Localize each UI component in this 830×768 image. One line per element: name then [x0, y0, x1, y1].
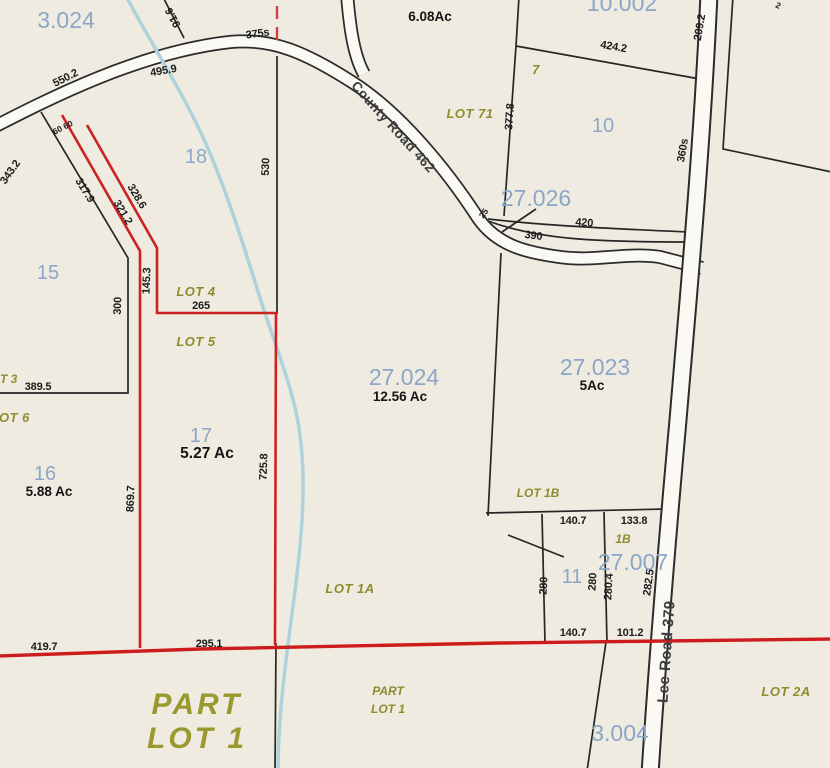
dim-265: 265	[192, 300, 210, 312]
parcel-number-17: 17	[190, 425, 212, 447]
acreage-588: 5.88 Ac	[26, 484, 73, 499]
dim-140-7-top: 140.7	[560, 515, 587, 527]
lot-label-2a: LOT 2A	[761, 684, 810, 699]
dim-869-7: 869.7	[125, 485, 138, 512]
parcel-number-3024: 3.024	[37, 7, 95, 33]
lot-label-6-partial: OT 6	[0, 410, 30, 425]
lot-label-4: LOT 4	[176, 284, 216, 299]
lot-label-7: 7	[532, 62, 540, 77]
parcel-number-10002: 10.002	[587, 0, 657, 16]
dim-300: 300	[112, 297, 125, 315]
dim-530: 530	[260, 158, 273, 176]
lot-label-3-partial: T 3	[0, 372, 18, 386]
dim-280-b: 280	[587, 573, 600, 591]
dim-295-1: 295.1	[196, 638, 223, 650]
lot-label-5: LOT 5	[176, 334, 216, 349]
dim-419-7: 419.7	[31, 641, 58, 653]
parcel-number-16: 16	[34, 463, 56, 485]
parcel-number-27024: 27.024	[369, 364, 440, 390]
dim-280-a: 280	[538, 577, 551, 595]
dim-140-7-bottom: 140.7	[560, 627, 587, 639]
lot-label-1b: LOT 1B	[517, 486, 560, 500]
acreage-608: 6.08Ac	[408, 9, 452, 24]
dim-725-8: 725.8	[258, 453, 271, 480]
dim-133-8: 133.8	[621, 515, 648, 527]
parcel-number-27023: 27.023	[560, 354, 630, 380]
acreage-527: 5.27 Ac	[180, 445, 234, 462]
lot-label-1a: LOT 1A	[325, 581, 374, 596]
lot-label-71: LOT 71	[446, 106, 493, 121]
dim-101-2: 101.2	[617, 627, 644, 639]
dim-280-4: 280.4	[602, 572, 615, 600]
boundary-line	[275, 643, 276, 768]
dim-145-3: 145.3	[141, 267, 154, 294]
lot-label-1b-small: 1B	[615, 532, 631, 546]
parcel-number-27007: 27.007	[598, 549, 668, 575]
parcel-number-15: 15	[37, 262, 59, 284]
dim-420: 420	[575, 216, 594, 229]
parcel-number-27026: 27.026	[501, 185, 571, 211]
parcel-number-11: 11	[562, 566, 583, 588]
dim-377-8: 377.8	[503, 103, 517, 130]
dim-389-5: 389.5	[25, 381, 52, 393]
parcel-number-18: 18	[185, 146, 207, 168]
part-lot1-large-line1: PART	[152, 688, 243, 721]
acreage-5: 5Ac	[580, 378, 605, 393]
dim-390: 390	[524, 229, 543, 243]
acreage-1256: 12.56 Ac	[373, 389, 428, 404]
part-lot1-small-line1: PART	[372, 684, 405, 698]
part-lot1-small-line2: LOT 1	[371, 702, 405, 716]
plat-map: 3.024 10.002 27.026 27.024 27.023 27.007…	[0, 0, 830, 768]
parcel-number-10: 10	[592, 115, 614, 137]
part-lot1-large-line2: LOT 1	[147, 722, 247, 755]
parcel-number-3004: 3.004	[591, 720, 649, 746]
